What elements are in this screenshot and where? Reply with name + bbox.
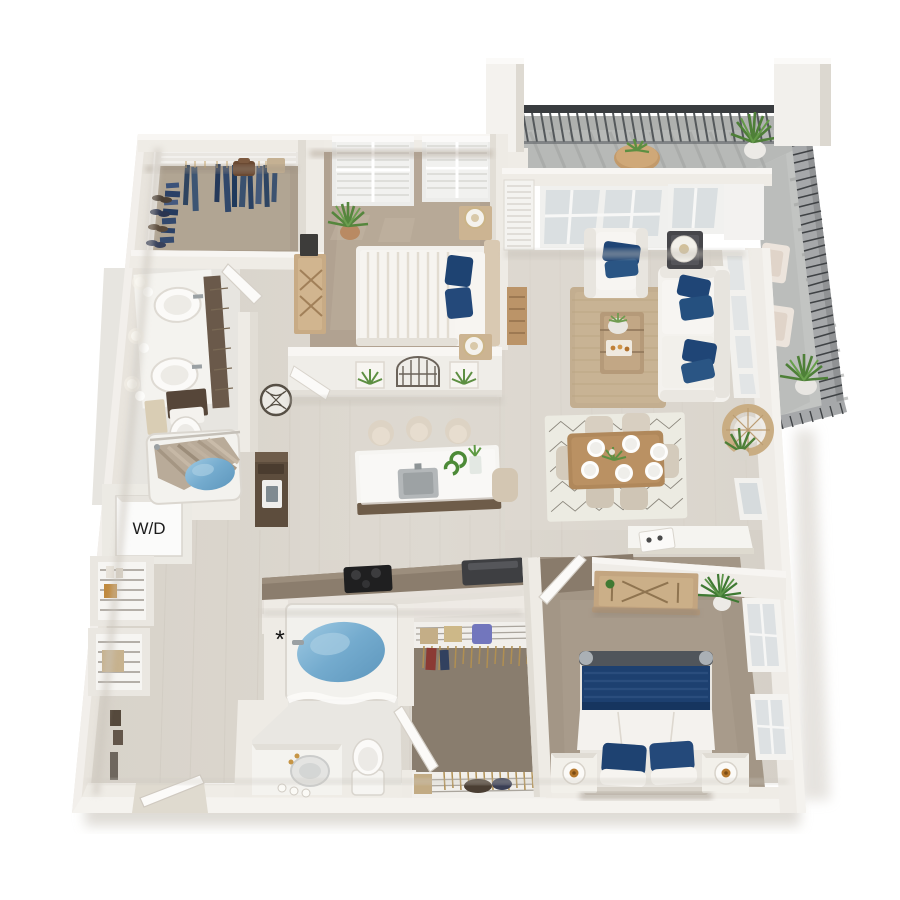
svg-text:W/D: W/D <box>132 519 165 538</box>
svg-text:*: * <box>275 626 285 654</box>
